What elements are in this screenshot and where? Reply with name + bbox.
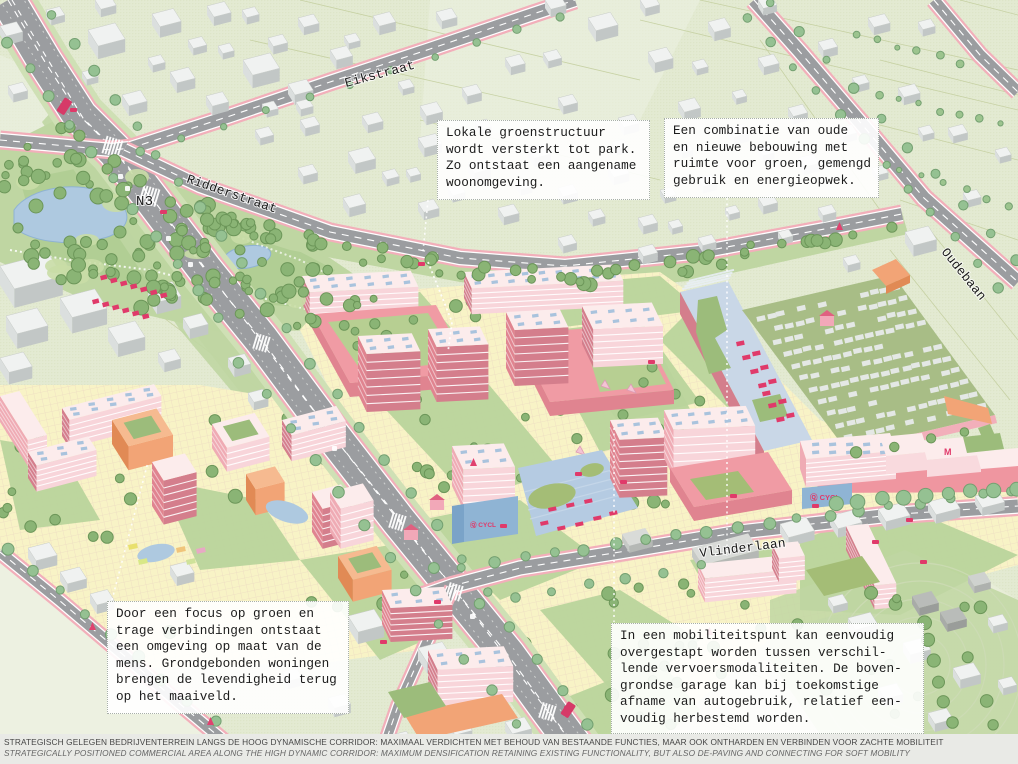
svg-text:Ⓠ CYCL: Ⓠ CYCL: [470, 520, 496, 529]
svg-text:N3: N3: [136, 194, 153, 210]
svg-text:M: M: [944, 447, 952, 457]
